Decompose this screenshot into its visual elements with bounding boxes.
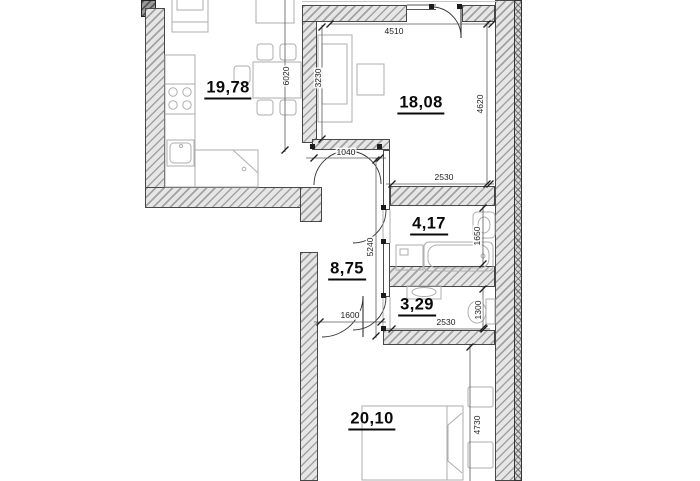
furniture [165, 0, 495, 480]
kitchen-cabinet [256, 0, 294, 23]
dining-table [253, 62, 301, 98]
dim-label-hall-door-width: 1040 [336, 148, 357, 157]
room-label-bedroom: 20,10 [348, 410, 395, 431]
dim-label-living-width: 4510 [384, 27, 405, 36]
dim-label-hallway-length: 5240 [366, 237, 375, 258]
coffee-table [357, 64, 384, 95]
kitchen-corner-counter [195, 150, 258, 187]
door-arc [434, 7, 461, 38]
floor-plan: 19,78 18,08 4,17 8,75 3,29 20,10 4510 60… [0, 0, 700, 481]
balcony-door [434, 7, 461, 38]
dim-label-living-left-height: 3230 [314, 68, 323, 89]
dim-label-bathroom-height: 1650 [473, 226, 482, 247]
dim-label-bedroom-door-width: 1600 [340, 311, 361, 320]
dim-label-wc-height: 1300 [474, 300, 483, 321]
nightstand-2 [468, 442, 493, 468]
dim-label-bathroom-width: 2530 [434, 173, 455, 182]
kitchen-counter [165, 55, 195, 187]
dim-label-living-right-height: 4620 [476, 94, 485, 115]
dim-label-bedroom-height: 4730 [473, 415, 482, 436]
sofa [318, 35, 352, 122]
room-label-hallway: 8,75 [328, 260, 366, 281]
wall-junction-marks [310, 4, 462, 331]
room-label-wc: 3,29 [398, 296, 436, 317]
dim-label-kitchen-height: 6020 [282, 66, 291, 87]
room-label-kitchen: 19,78 [204, 79, 251, 100]
washing-machine [396, 245, 423, 270]
door-opening-faces [383, 210, 390, 330]
fridge [172, 0, 208, 32]
room-label-bathroom: 4,17 [410, 215, 448, 236]
room-label-living: 18,08 [397, 94, 444, 115]
nightstand-1 [468, 387, 493, 407]
dim-label-wc-width: 2530 [436, 318, 457, 327]
stove [165, 84, 195, 114]
kitchen-sink [167, 140, 194, 166]
